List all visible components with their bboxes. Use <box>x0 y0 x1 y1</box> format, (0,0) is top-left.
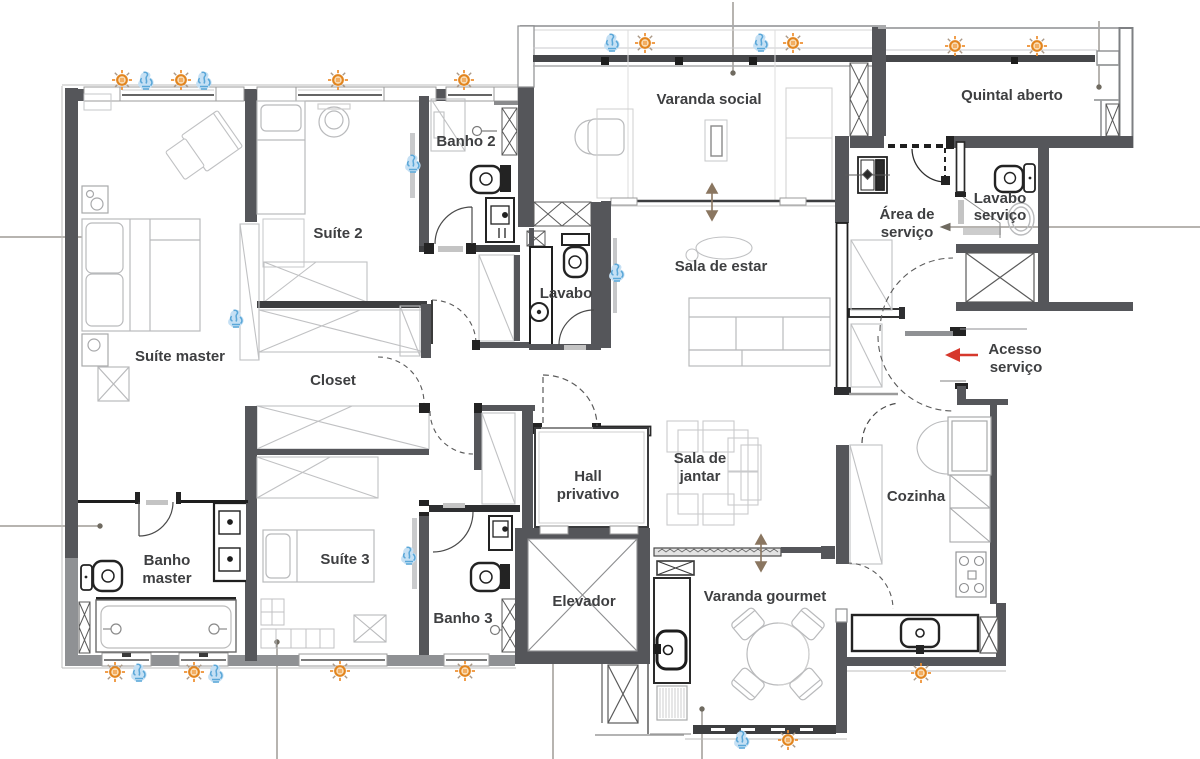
svg-text:Elevador: Elevador <box>552 593 616 610</box>
svg-text:Área de: Área de <box>879 206 934 223</box>
svg-text:Banho 2: Banho 2 <box>436 133 495 150</box>
svg-text:Banho: Banho <box>144 552 191 569</box>
svg-text:Cozinha: Cozinha <box>887 488 946 505</box>
svg-text:Suíte 3: Suíte 3 <box>320 551 369 568</box>
svg-text:serviço: serviço <box>974 207 1027 224</box>
svg-text:Sala de estar: Sala de estar <box>675 258 768 275</box>
svg-text:jantar: jantar <box>679 468 721 485</box>
svg-text:Hall: Hall <box>574 468 602 485</box>
svg-text:Lavabo: Lavabo <box>974 190 1027 207</box>
svg-text:serviço: serviço <box>881 224 934 241</box>
svg-text:Quintal aberto: Quintal aberto <box>961 87 1063 104</box>
svg-text:Suíte 2: Suíte 2 <box>313 225 362 242</box>
svg-text:Closet: Closet <box>310 372 356 389</box>
svg-text:master: master <box>142 570 191 587</box>
svg-text:Varanda gourmet: Varanda gourmet <box>704 588 827 605</box>
svg-text:Banho 3: Banho 3 <box>433 610 492 627</box>
svg-text:Varanda social: Varanda social <box>656 91 761 108</box>
svg-text:serviço: serviço <box>990 359 1043 376</box>
svg-text:Suíte master: Suíte master <box>135 348 225 365</box>
svg-text:Sala de: Sala de <box>674 450 727 467</box>
svg-text:privativo: privativo <box>557 486 620 503</box>
svg-text:Lavabo: Lavabo <box>540 285 593 302</box>
svg-text:Acesso: Acesso <box>988 341 1041 358</box>
